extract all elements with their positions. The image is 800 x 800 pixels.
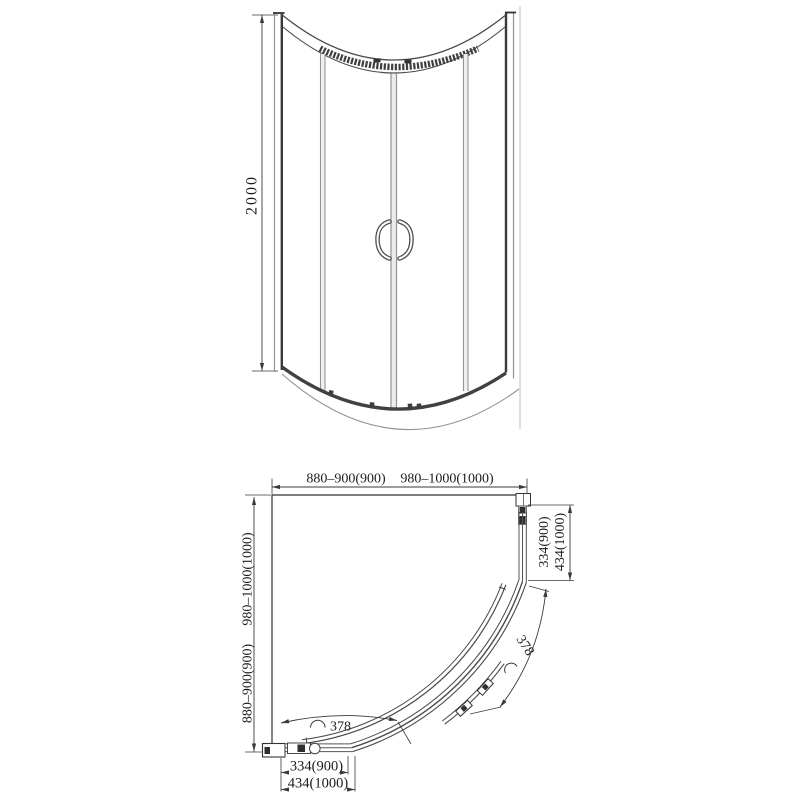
door-handle-right[interactable] <box>400 222 412 259</box>
left-wall-post <box>273 13 285 372</box>
arrowhead <box>252 744 256 752</box>
track-clip <box>404 59 411 63</box>
dim-plan-width-1: 880–900(900) <box>306 472 386 487</box>
guide-roller <box>310 743 321 754</box>
elevation-height-dimension: 2000 <box>244 15 279 371</box>
arrowhead <box>389 717 398 723</box>
arc-length-symbol <box>505 663 517 673</box>
arrowhead <box>281 770 289 774</box>
arrowhead <box>568 505 572 513</box>
dim-arc-bottom: 378 <box>330 720 351 735</box>
plan-top-dimension: 880–900(900) 980–1000(1000) <box>272 472 527 495</box>
wall-profile-bottom-left <box>263 743 321 757</box>
dim-bottom-entry-1: 334(900) <box>290 759 343 775</box>
dim-plan-depth-2: 880–900(900) <box>241 644 256 724</box>
arrowhead <box>519 485 527 489</box>
top-rail <box>281 14 507 73</box>
curved-track-arcs <box>351 580 527 752</box>
arrowhead <box>260 15 264 23</box>
right-wall-post <box>505 13 516 379</box>
arrowhead <box>281 719 290 725</box>
plan-right-dimensions: 334(900) 434(1000) <box>528 505 574 581</box>
dim-plan-width-2: 980–1000(1000) <box>400 472 494 487</box>
plan-view: 880–900(900) 980–1000(1000) 980–1000(100… <box>241 472 575 792</box>
fixed-panel-stile-left <box>321 54 326 391</box>
dim-right-entry-1: 334(900) <box>537 516 552 568</box>
door-overlap-arcs <box>442 661 504 724</box>
plan-left-dimension: 980–1000(1000) 880–900(900) <box>241 495 272 752</box>
shower-enclosure-drawing: 2000 <box>0 0 800 800</box>
bottom-rail <box>282 367 519 430</box>
arrowhead <box>568 573 572 581</box>
dim-bottom-entry-2: 434(1000) <box>288 776 349 792</box>
wall-profile-top-right <box>516 494 531 525</box>
arrowhead <box>272 485 280 489</box>
dim-plan-depth-1: 980–1000(1000) <box>241 532 256 626</box>
dim-elevation-height: 2000 <box>244 175 261 215</box>
dim-arc-right: 378 <box>513 633 537 659</box>
dim-right-entry-2: 434(1000) <box>553 513 568 572</box>
arrowhead <box>260 363 264 371</box>
arc-length-symbol <box>311 720 326 727</box>
plan-bottom-dimensions: 334(900) 434(1000) <box>281 756 355 792</box>
fixed-panel-stile-right <box>464 54 469 391</box>
arrowhead <box>252 497 256 505</box>
center-door-stiles <box>391 74 397 410</box>
drawing-page: 2000 <box>0 0 800 800</box>
track-clip <box>373 58 380 62</box>
door-handle-left[interactable] <box>378 222 390 259</box>
arc-dimension-bottom: 378 <box>281 716 411 744</box>
front-elevation: 2000 <box>244 6 521 430</box>
